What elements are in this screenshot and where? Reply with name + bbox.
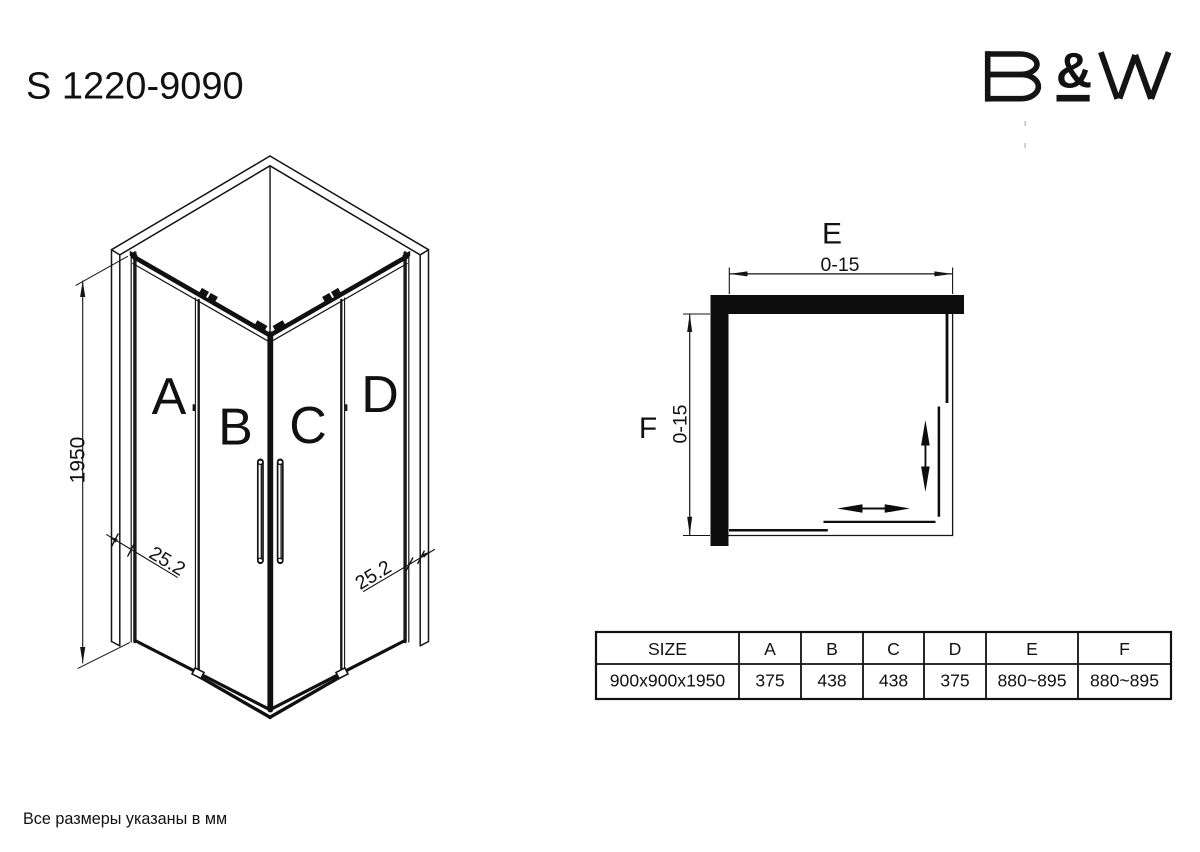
svg-text:900x900x1950: 900x900x1950 <box>610 671 726 691</box>
svg-text:0-15: 0-15 <box>670 404 692 443</box>
svg-text:438: 438 <box>879 671 909 691</box>
svg-text:E: E <box>822 217 842 250</box>
svg-text:A: A <box>152 368 187 426</box>
svg-text:438: 438 <box>817 671 847 691</box>
svg-text:S 1220-9090: S 1220-9090 <box>26 66 244 108</box>
svg-text:D: D <box>361 366 399 424</box>
svg-text:375: 375 <box>940 671 970 691</box>
svg-text:880~895: 880~895 <box>998 671 1067 691</box>
svg-text:Все размеры указаны в мм: Все размеры указаны в мм <box>23 810 227 828</box>
svg-text:0-15: 0-15 <box>820 254 859 276</box>
svg-text:B: B <box>826 639 838 659</box>
svg-text:1950: 1950 <box>66 437 89 484</box>
svg-text:D: D <box>949 639 962 659</box>
svg-text:880~895: 880~895 <box>1090 671 1159 691</box>
svg-text:A: A <box>764 639 776 659</box>
svg-text:C: C <box>289 397 327 455</box>
svg-text:375: 375 <box>755 671 785 691</box>
svg-text:SIZE: SIZE <box>648 639 687 659</box>
svg-text:F: F <box>639 412 657 445</box>
svg-text:&: & <box>1056 42 1092 98</box>
svg-text:F: F <box>1119 639 1130 659</box>
svg-text:C: C <box>887 639 900 659</box>
svg-text:B: B <box>218 399 253 457</box>
svg-text:E: E <box>1026 639 1038 659</box>
